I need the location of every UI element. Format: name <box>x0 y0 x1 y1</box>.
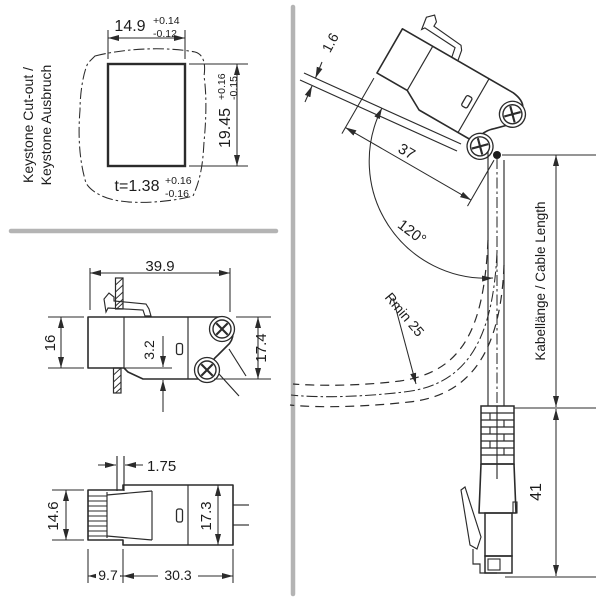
panel-plate-line <box>304 73 461 144</box>
cutout-height-tol-minus: -0.15 <box>228 76 240 100</box>
rj45-contacts <box>88 496 107 536</box>
cable-length-label: Kabellänge / Cable Length <box>533 201 548 360</box>
bend-radius-value: Rmin 25 <box>382 289 428 339</box>
body-divider <box>407 46 433 90</box>
side-view: 39.9 16 3.2 <box>42 258 271 412</box>
panel-bar-top-hatch <box>116 278 124 309</box>
cutout-title-line2: Keystone Ausbruch <box>38 65 54 186</box>
top-view: 1.75 14.6 17.3 9.7 30.3 <box>45 456 249 583</box>
cutout-height-tol-plus: +0.16 <box>216 73 228 100</box>
cable-angle-value: 120° <box>394 216 429 248</box>
plug-length-value: 41 <box>528 483 545 501</box>
leader-line <box>219 374 239 396</box>
panel-dim-arrow <box>305 86 312 102</box>
cutout-width-value: 14.9 <box>114 18 145 35</box>
technical-drawing-page: Keystone Cut-out / Keystone Ausbruch 14.… <box>0 0 600 600</box>
module-length-value: 37 <box>395 140 418 163</box>
top-front-height-value: 14.6 <box>45 501 62 530</box>
bend-curve-outer <box>293 240 488 385</box>
keystone-cutout-view: Keystone Cut-out / Keystone Ausbruch 14.… <box>20 15 248 202</box>
mounted-view: 37 1.6 120° Rmin 25 Kabellänge / Cable L… <box>290 5 596 577</box>
side-front-height-value: 16 <box>42 335 59 352</box>
top-rear-depth-value: 30.3 <box>164 567 191 583</box>
socket-cavity-line <box>107 491 152 495</box>
side-rear-height-value: 17.4 <box>253 333 270 362</box>
cutout-thickness-tol-minus: -0.16 <box>165 188 189 200</box>
tilted-body-outline <box>371 29 528 155</box>
top-rear-height-value: 17.3 <box>198 501 215 530</box>
cutout-width-tol-plus: +0.14 <box>153 15 180 27</box>
panel-thickness-value: 1.6 <box>318 30 341 55</box>
side-step-value: 3.2 <box>141 340 157 360</box>
cutout-thickness-tol-plus: +0.16 <box>165 175 192 187</box>
panel-dim-arrow <box>316 62 323 78</box>
cutout-thickness-value: t=1.38 <box>115 178 160 195</box>
cutout-height-value: 19.45 <box>217 108 234 148</box>
ext-line <box>468 160 495 206</box>
tilted-coupler: 37 <box>342 5 547 210</box>
top-latch-width-value: 1.75 <box>147 458 176 475</box>
cable-origin-dot <box>493 151 501 159</box>
cutout-rectangle <box>108 64 185 166</box>
plug-latch-lever <box>461 487 481 549</box>
panel-bar-bottom-hatch <box>114 368 122 393</box>
plug-detail <box>488 559 500 570</box>
plug-body <box>485 513 512 556</box>
cutout-title-line1: Keystone Cut-out / <box>20 67 36 183</box>
module-length-dim-line <box>345 128 471 201</box>
drawing-canvas: Keystone Cut-out / Keystone Ausbruch 14.… <box>0 0 600 600</box>
cutout-height-label: 19.45 +0.16 -0.15 <box>216 73 240 148</box>
cutout-width-tol-minus: -0.12 <box>153 28 177 40</box>
body-slot <box>177 344 183 355</box>
leader-line <box>229 349 246 376</box>
top-front-depth-value: 9.7 <box>98 567 118 583</box>
latch-arm <box>104 293 151 316</box>
body-slot <box>177 509 183 522</box>
bend-curve-center <box>291 252 497 397</box>
body-slot <box>461 95 473 109</box>
side-length-value: 39.9 <box>145 258 174 275</box>
